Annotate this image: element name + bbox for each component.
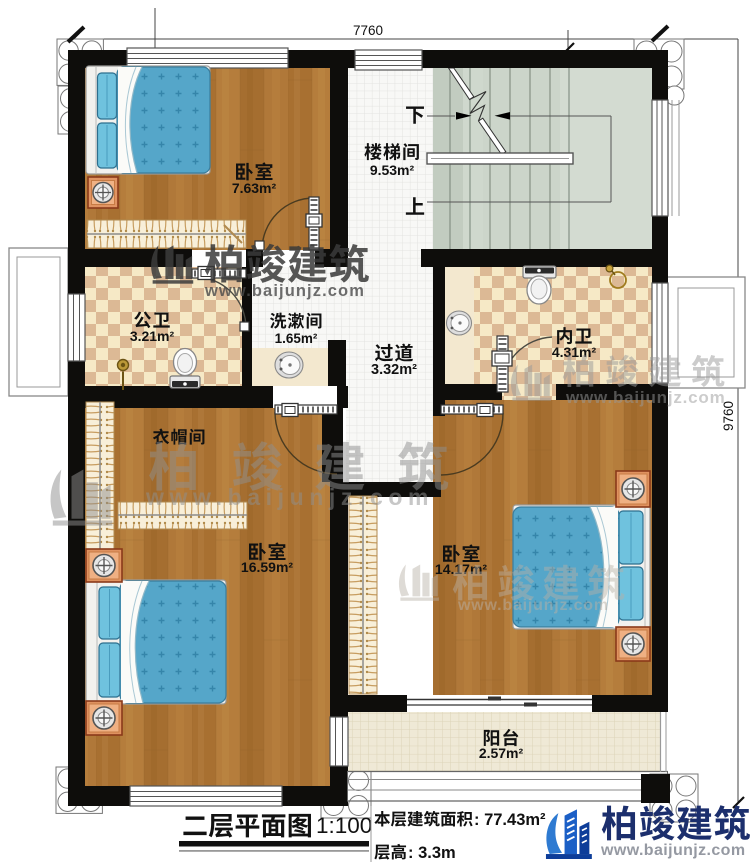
svg-text:www.baijunjz.com: www.baijunjz.com — [565, 388, 726, 407]
svg-text:7760: 7760 — [353, 23, 383, 38]
svg-text:: 77.43m²: : 77.43m² — [474, 811, 546, 829]
svg-text:9.53m²: 9.53m² — [370, 162, 415, 178]
svg-text:www.baijunjz.com: www.baijunjz.com — [204, 282, 365, 300]
svg-text:www.baijunjz.com: www.baijunjz.com — [600, 842, 746, 859]
svg-text:3.21m²: 3.21m² — [130, 328, 175, 344]
svg-text:1:100: 1:100 — [316, 813, 372, 838]
svg-text:3.32m²: 3.32m² — [371, 362, 417, 378]
svg-text:: 3.3m: : 3.3m — [408, 844, 456, 862]
svg-text:4.31m²: 4.31m² — [552, 344, 597, 360]
svg-text:16.59m²: 16.59m² — [241, 559, 293, 575]
svg-text:www.baijunjz.com: www.baijunjz.com — [145, 484, 434, 510]
svg-text:7.63m²: 7.63m² — [232, 180, 277, 196]
svg-text:2.57m²: 2.57m² — [479, 745, 524, 761]
svg-text:www.baijunjz.com: www.baijunjz.com — [457, 597, 609, 614]
svg-text:1.65m²: 1.65m² — [275, 331, 318, 346]
